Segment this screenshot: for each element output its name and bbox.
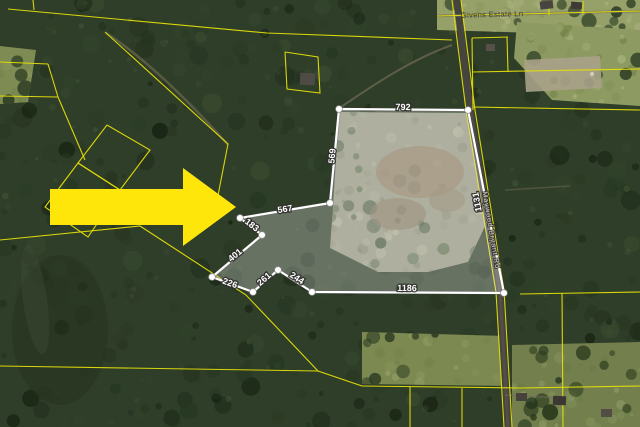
satellite-map-image: 79211311186244261226401183567569 Givens … [0,0,640,427]
edge-measurement-label: 1186 [397,283,417,293]
boundary-vertex-dot [465,107,472,114]
boundary-vertex-dot [309,289,316,296]
boundary-vertex-dot [209,274,216,281]
edge-measurement-label: 792 [395,102,410,112]
edge-measurement-label: 569 [326,148,337,164]
map-canvas: 79211311186244261226401183567569 Givens … [0,0,640,427]
boundary-vertex-dot [501,290,508,297]
boundary-vertex-dot [237,215,244,222]
boundary-vertex-dot [250,289,257,296]
boundary-vertex-dot [327,200,334,207]
boundary-vertex-dot [336,106,343,113]
street-name-label: Givens Estate Ln [461,9,524,20]
boundary-vertex-dot [259,232,266,239]
boundary-vertex-dot [275,267,282,274]
